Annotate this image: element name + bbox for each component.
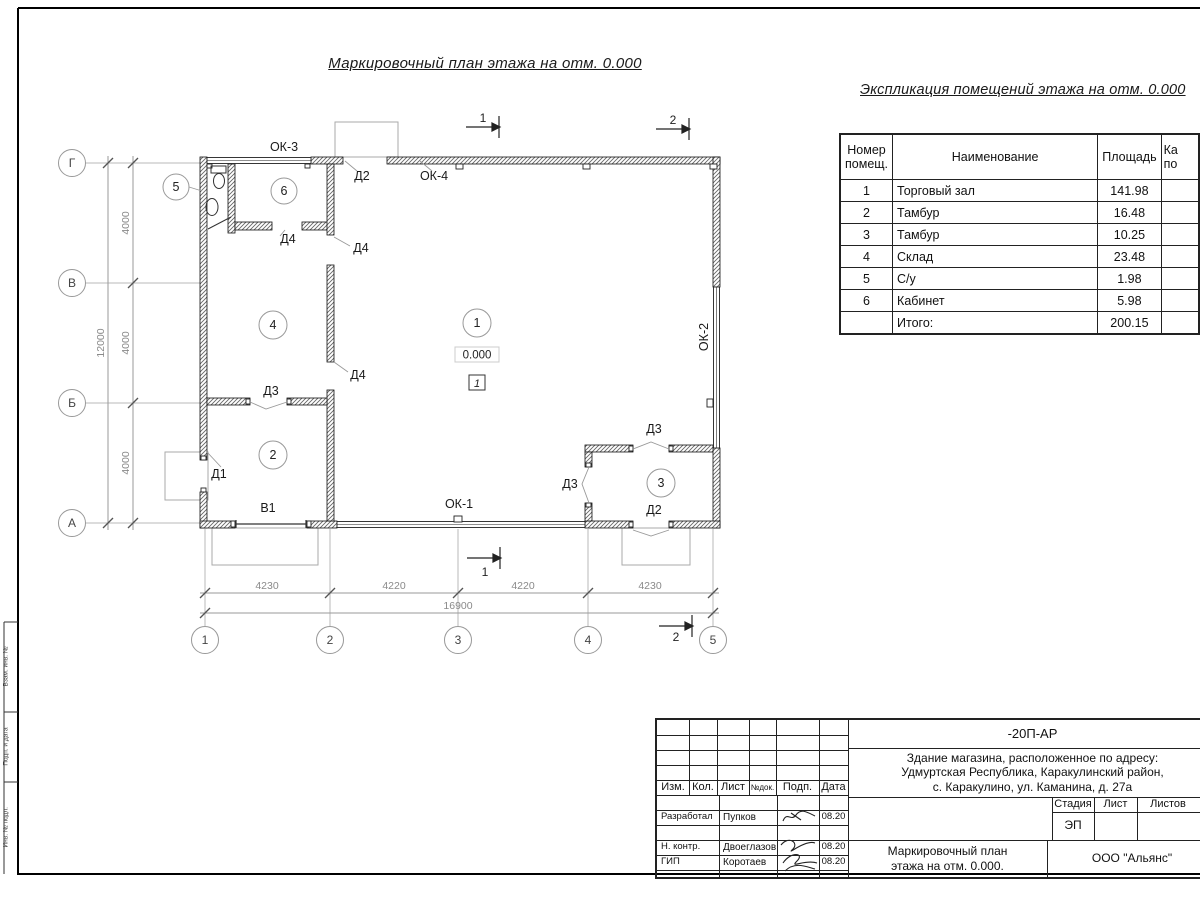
dim-bottom-1: 4230 [255, 580, 279, 592]
label-d2-top: Д2 [354, 169, 369, 183]
col-podp: Подп. [776, 780, 819, 795]
explication-header-row: Номерпомещ. Наименование Площадь Капо [840, 134, 1199, 180]
section-2-bottom: 2 [659, 615, 693, 644]
doc-number: -20П-АР [848, 720, 1200, 748]
section-2-top: 2 [656, 113, 690, 140]
signature-developer [777, 807, 819, 827]
stage-label: Стадия [1052, 797, 1094, 812]
svg-text:2: 2 [670, 113, 677, 127]
label-ok3: ОК-3 [270, 140, 298, 154]
label-d2-bottom: Д2 [646, 503, 661, 517]
date-ncontrol: 08.20 [819, 840, 848, 855]
table-row: 4Склад23.48 [840, 246, 1199, 268]
room-6: 6 [281, 184, 288, 198]
room-4: 4 [270, 318, 277, 332]
label-ok1: ОК-1 [445, 497, 473, 511]
elevation-mark: 0.000 [455, 347, 499, 362]
sink-icon [206, 199, 218, 216]
col-ndok: №док. [749, 780, 776, 795]
dim-left-3: 4000 [120, 451, 132, 475]
table-row: 1Торговый зал141.98 [840, 180, 1199, 202]
axis-3: 3 [455, 633, 462, 647]
label-d1: Д1 [211, 467, 226, 481]
room-5: 5 [173, 180, 180, 194]
margin-label-inv: Инв. № подл. [3, 808, 10, 848]
col-kol: Кол. [689, 780, 717, 795]
table-row: 2Тамбур16.48 [840, 202, 1199, 224]
project-address: Здание магазина, расположенное по адресу… [848, 748, 1200, 797]
sheet-label: Лист [1094, 797, 1137, 812]
axis-grid [86, 163, 713, 626]
dim-bottom-total: 16900 [443, 600, 472, 612]
dim-bottom-2: 4220 [382, 580, 406, 592]
room-3: 3 [658, 476, 665, 490]
label-d4-3: Д4 [350, 368, 365, 382]
axis-2: 2 [327, 633, 334, 647]
door-swing-line [208, 217, 231, 229]
dim-bottom-4: 4230 [638, 580, 662, 592]
wc-fixtures [206, 166, 231, 229]
axis-5: 5 [710, 633, 717, 647]
label-v1: В1 [260, 501, 275, 515]
explication-table: Номерпомещ. Наименование Площадь Капо 1Т… [839, 133, 1200, 335]
explication-title: Экспликация помещений этажа на отм. 0.00… [860, 82, 1186, 98]
axis-labels: Г В Б А 1 2 3 4 5 [68, 156, 717, 647]
label-d3-1: Д3 [263, 384, 278, 398]
dimension-ticks [103, 158, 718, 618]
jamb-marks [201, 164, 717, 527]
name-ncontrol: Двоеглазов [719, 840, 781, 855]
col-number: Номерпомещ. [840, 134, 893, 180]
dimension-values: 4000 4000 4000 12000 4230 4220 4220 4230… [95, 211, 662, 612]
toilet-tank-icon [211, 166, 226, 173]
axis-1: 1 [202, 633, 209, 647]
col-izm: Изм. [657, 780, 689, 795]
label-ok4: ОК-4 [420, 169, 448, 183]
role-gip: ГИП [657, 855, 723, 870]
room-2: 2 [270, 448, 277, 462]
name-developer: Пупков [719, 810, 781, 825]
margin-label-vzam: Взам. инв. № [3, 647, 10, 687]
floor-type-mark: 1 [469, 375, 485, 390]
table-row: 3Тамбур10.25 [840, 224, 1199, 246]
role-developer: Разработал [657, 810, 723, 825]
axis-b: Б [68, 396, 76, 410]
margin-label-podp: Подп. и дата [3, 727, 10, 767]
svg-text:1: 1 [482, 565, 489, 579]
section-1-bottom: 1 [467, 547, 501, 579]
room-1: 1 [474, 316, 481, 330]
table-row: 5С/у1.98 [840, 268, 1199, 290]
col-name: Наименование [893, 134, 1098, 180]
drawing-name: Маркировочный план этажа на отм. 0.000. [848, 840, 1047, 877]
col-category: Капо [1161, 134, 1199, 180]
table-row-total: Итого:200.15 [840, 312, 1199, 335]
svg-text:2: 2 [673, 630, 680, 644]
label-ok2: ОК-2 [697, 323, 711, 351]
label-d4-1: Д4 [280, 232, 295, 246]
col-area: Площадь [1098, 134, 1161, 180]
name-gip: Коротаев [719, 855, 781, 870]
toilet-bowl-icon [214, 174, 225, 189]
stage-value: ЭП [1052, 812, 1094, 840]
svg-text:1: 1 [474, 378, 480, 390]
dim-left-2: 4000 [120, 331, 132, 355]
dim-bottom-3: 4220 [511, 580, 535, 592]
signature-ncontrol-gip [775, 833, 821, 875]
company-name: ООО "Альянс" [1047, 840, 1200, 877]
porches [165, 122, 690, 565]
address-line-2: Удмуртская Республика, Каракулинский рай… [901, 765, 1164, 780]
leader-lines [189, 161, 669, 536]
axis-v: В [68, 276, 76, 290]
axis-a: А [68, 516, 76, 530]
label-d3-2: Д3 [646, 422, 661, 436]
dim-left-total: 12000 [95, 328, 107, 357]
col-data: Дата [819, 780, 848, 795]
entrance-v1-line [235, 520, 307, 528]
windows [207, 158, 720, 528]
title-block: Изм. Кол. Лист №док. Подп. Дата Разработ… [655, 718, 1200, 879]
date-gip: 08.20 [819, 855, 848, 870]
address-line-1: Здание магазина, расположенное по адресу… [907, 751, 1158, 766]
plan-title: Маркировочный план этажа на отм. 0.000 [285, 55, 685, 72]
section-marks: 1 2 1 2 [466, 111, 693, 644]
label-d3-3: Д3 [562, 477, 577, 491]
walls [200, 157, 720, 528]
svg-text:0.000: 0.000 [463, 350, 492, 362]
axis-markers [59, 150, 727, 654]
axis-4: 4 [585, 633, 592, 647]
date-developer: 08.20 [819, 810, 848, 825]
col-list: Лист [717, 780, 749, 795]
section-1-top: 1 [466, 111, 500, 138]
dim-left-1: 4000 [120, 211, 132, 235]
table-row: 6Кабинет5.98 [840, 290, 1199, 312]
address-line-3: с. Каракулино, ул. Каманина, д. 27а [933, 780, 1132, 795]
label-d4-2: Д4 [353, 241, 368, 255]
svg-text:1: 1 [480, 111, 487, 125]
axis-g: Г [69, 156, 76, 170]
sheets-label: Листов [1137, 797, 1199, 812]
role-ncontrol: Н. контр. [657, 840, 723, 855]
drawing-sheet: 4000 4000 4000 12000 4230 4220 4220 4230… [0, 0, 1200, 900]
